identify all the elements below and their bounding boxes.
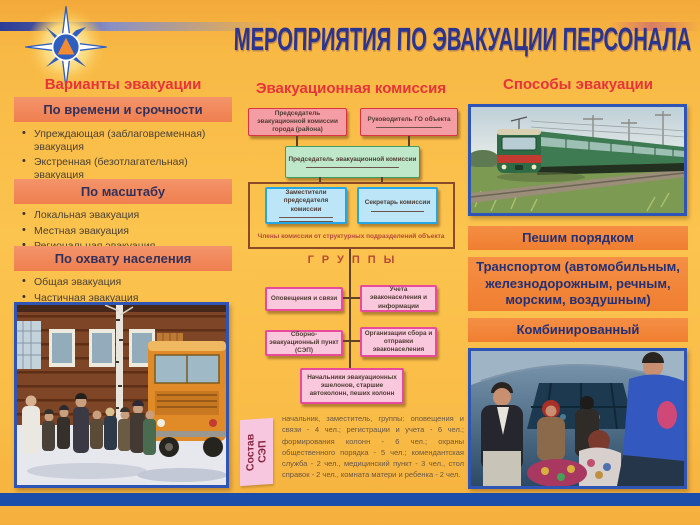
time-items-list: Упреждающая (заблаговременная) эвакуация… (18, 128, 230, 184)
org-box-city-chair: Председатель эвакуационной комиссии горо… (248, 108, 347, 136)
list-item: Местная эвакуация (18, 225, 230, 238)
left-column: Варианты эвакуации По времени и срочност… (14, 0, 232, 525)
org-box-train-chiefs: Начальники эвакуационных эшелонов, старш… (300, 368, 404, 404)
right-column-heading: Способы эвакуации (468, 76, 688, 93)
sep-label-text: Состав СЭП (244, 433, 268, 472)
org-box-label: Председатель эвакуационной комиссии (289, 156, 417, 164)
group-box-dispatch: Организации сбора и отправки эваконаселе… (360, 327, 437, 357)
groups-label: ГРУППЫ (238, 254, 464, 266)
signature-line (306, 167, 399, 168)
org-box-label: Секретарь комиссии (365, 199, 431, 207)
signature-line (279, 221, 332, 222)
method-band-transport: Транспортом (автомобильным, железнодорож… (468, 257, 688, 311)
members-note: Члены комиссии от структурных подразделе… (254, 233, 448, 240)
group-box-label: Оповещения и связи (271, 295, 337, 303)
right-column: Способы эвакуации (468, 0, 688, 525)
org-box-secretary: Секретарь комиссии (357, 187, 438, 224)
sep-composition-text: начальник, заместитель, группы: оповещен… (282, 413, 464, 481)
list-item: Общая эвакуация (18, 276, 230, 289)
group-box-notification: Оповещения и связи (265, 287, 343, 311)
signature-line (376, 127, 442, 128)
connector-line (343, 297, 360, 299)
signature-line (279, 217, 332, 218)
group-box-label: Организации сбора и отправки эваконаселе… (364, 330, 433, 355)
footer-band (0, 493, 700, 506)
org-box-label: Заместители председателя комиссии (269, 189, 343, 214)
org-box-deputies: Заместители председателя комиссии (265, 187, 347, 224)
section-band-time: По времени и срочности (14, 97, 232, 122)
connector-line (343, 340, 360, 342)
signature-line (371, 211, 424, 212)
center-column: Эвакуационная комиссия Председатель эвак… (238, 0, 464, 525)
method-band-combined: Комбинированный (468, 318, 688, 342)
bus-evacuation-photo (14, 302, 229, 488)
left-column-heading: Варианты эвакуации (14, 76, 232, 93)
list-item: Локальная эвакуация (18, 209, 230, 222)
org-box-commission-chair: Председатель эвакуационной комиссии (285, 146, 420, 178)
org-box-go-head: Руководитель ГО объекта (360, 108, 458, 136)
list-item: Упреждающая (заблаговременная) эвакуация (18, 128, 230, 153)
org-box-label: Председатель эвакуационной комиссии горо… (251, 110, 344, 135)
group-box-registration: Учета эваконаселения и информации (360, 285, 437, 312)
connector-line (349, 249, 351, 369)
group-box-label: Учета эваконаселения и информации (364, 286, 433, 311)
list-item: Экстренная (безотлагательная) эвакуация (18, 156, 230, 181)
method-band-foot: Пешим порядком (468, 226, 688, 250)
aircraft-cabin-photo (468, 348, 687, 489)
section-band-scale: По масштабу (14, 179, 232, 204)
group-box-label: Сборно-эвакуационный пункт (СЭП) (269, 331, 339, 356)
train-photo (468, 104, 687, 216)
section-band-coverage: По охвату населения (14, 246, 232, 271)
sep-composition-label: Состав СЭП (240, 418, 273, 486)
org-box-label: Начальники эвакуационных эшелонов, старш… (304, 374, 400, 399)
center-column-heading: Эвакуационная комиссия (238, 80, 464, 97)
org-box-label: Руководитель ГО объекта (367, 116, 450, 124)
group-box-sep: Сборно-эвакуационный пункт (СЭП) (265, 330, 343, 356)
evacuation-poster: МЕРОПРИЯТИЯ ПО ЭВАКУАЦИИ ПЕРСОНАЛА Вариа… (0, 0, 700, 525)
